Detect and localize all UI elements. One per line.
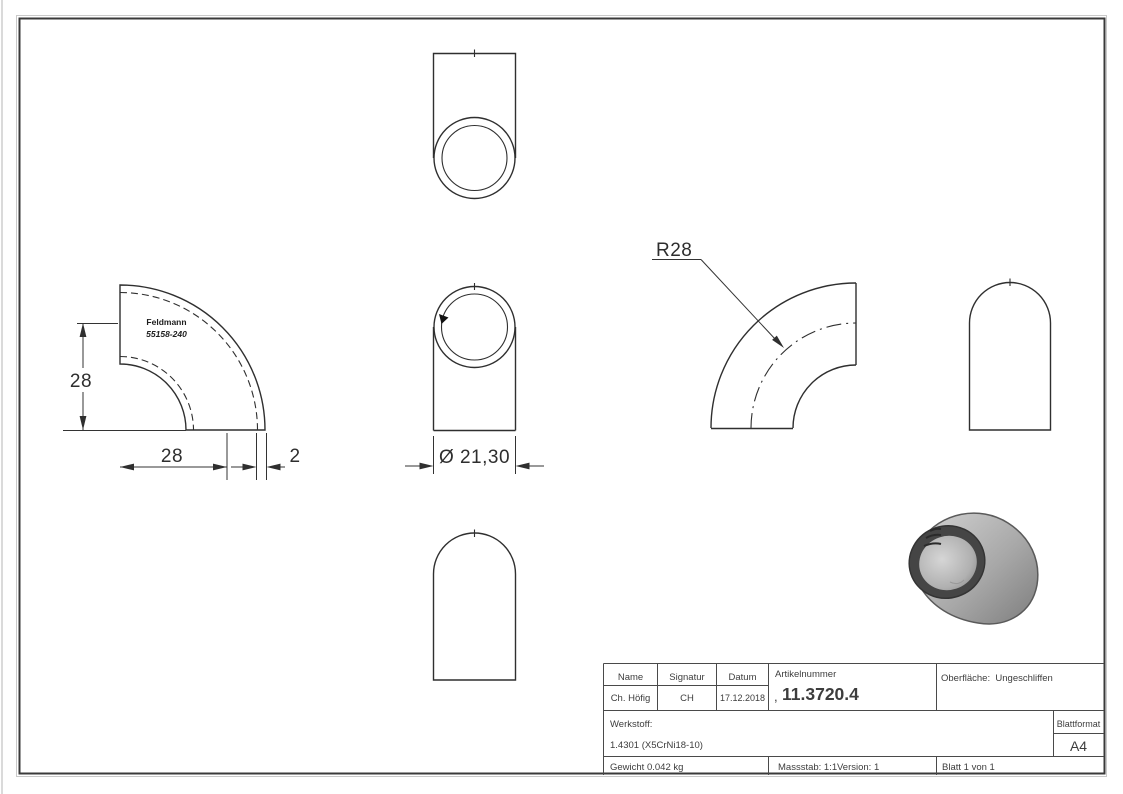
value-blattformat: A4 [1070,738,1087,754]
value-blatt: Blatt 1 von 1 [942,762,995,773]
frame-border [20,19,1105,774]
arrowhead-icon [420,463,434,470]
part-code-marking: 55158-240 [146,329,187,339]
artikelnummer-prefix: , [774,689,778,704]
centerline-arc [751,323,856,428]
header-oberflaeche: Oberfläche: Ungeschliffen [941,673,1053,684]
pipe-outer-circle [434,287,515,368]
brand-marking: Feldmann [146,317,186,327]
hidden-inner-wall [120,357,194,431]
value-werkstoff: 1.4301 (X5CrNi18-10) [610,740,703,751]
arrowhead-icon [120,464,134,471]
dim-label: Ø 21,30 [439,447,510,468]
iso-render [900,513,1038,624]
drawing-sheet: Feldmann 55158-240 28 28 2 [0,0,1123,794]
dome-outline [970,283,1051,431]
leader-line [701,260,776,341]
value-massstab: Massstab: 1:1 [778,762,837,773]
value-name: Ch. Höfig [611,693,651,704]
axial-view [434,283,516,431]
side-view-bottom [434,530,516,681]
header-blattformat: Blattformat [1057,719,1101,729]
dim-height-28: 28 [63,323,186,431]
arrowhead-icon [516,463,530,470]
dim-wall-2: 2 [231,433,301,480]
dim-label: 28 [70,371,92,392]
dim-label: R28 [656,240,692,261]
header-signatur: Signatur [669,672,704,683]
side-view-right [970,279,1051,431]
pipe-outer-circle [434,118,515,199]
title-block: Name Signatur Datum Artikelnummer Oberfl… [604,664,1105,776]
inner-arc [793,365,856,428]
dim-bend-radius-r28: R28 [652,240,784,348]
frame-shadow [17,16,1107,777]
value-datum: 17.12.2018 [720,693,765,703]
value-gewicht: Gewicht 0.042 kg [610,762,683,773]
elbow-outline [120,285,265,430]
arrowhead-icon [213,464,227,471]
header-datum: Datum [729,672,757,683]
dim-label: 28 [161,446,183,467]
arrowhead-icon [243,464,257,471]
arrowhead-icon [80,323,87,337]
header-name: Name [618,672,643,683]
dim-radius-28: 28 [120,433,227,480]
cad-drawing: Feldmann 55158-240 28 28 2 [0,0,1123,794]
dim-label: 2 [289,446,300,467]
value-artikelnummer: 11.3720.4 [782,684,859,704]
dim-diameter: Ø 21,30 [405,436,544,474]
value-signatur: CH [680,693,694,704]
arrowhead-icon [267,464,281,471]
arrowhead-icon [80,416,87,430]
hidden-outer-wall [120,293,258,431]
top-view [434,50,516,199]
pipe-inner-circle [442,294,508,360]
dome-outline [434,533,516,680]
header-werkstoff: Werkstoff: [610,719,652,730]
front-view: Feldmann 55158-240 [120,285,265,430]
rotated-view [711,283,856,429]
header-artikelnummer: Artikelnummer [775,669,836,680]
value-version: Version: 1 [837,762,879,773]
outer-arc [711,283,856,428]
pipe-inner-circle [442,126,507,191]
